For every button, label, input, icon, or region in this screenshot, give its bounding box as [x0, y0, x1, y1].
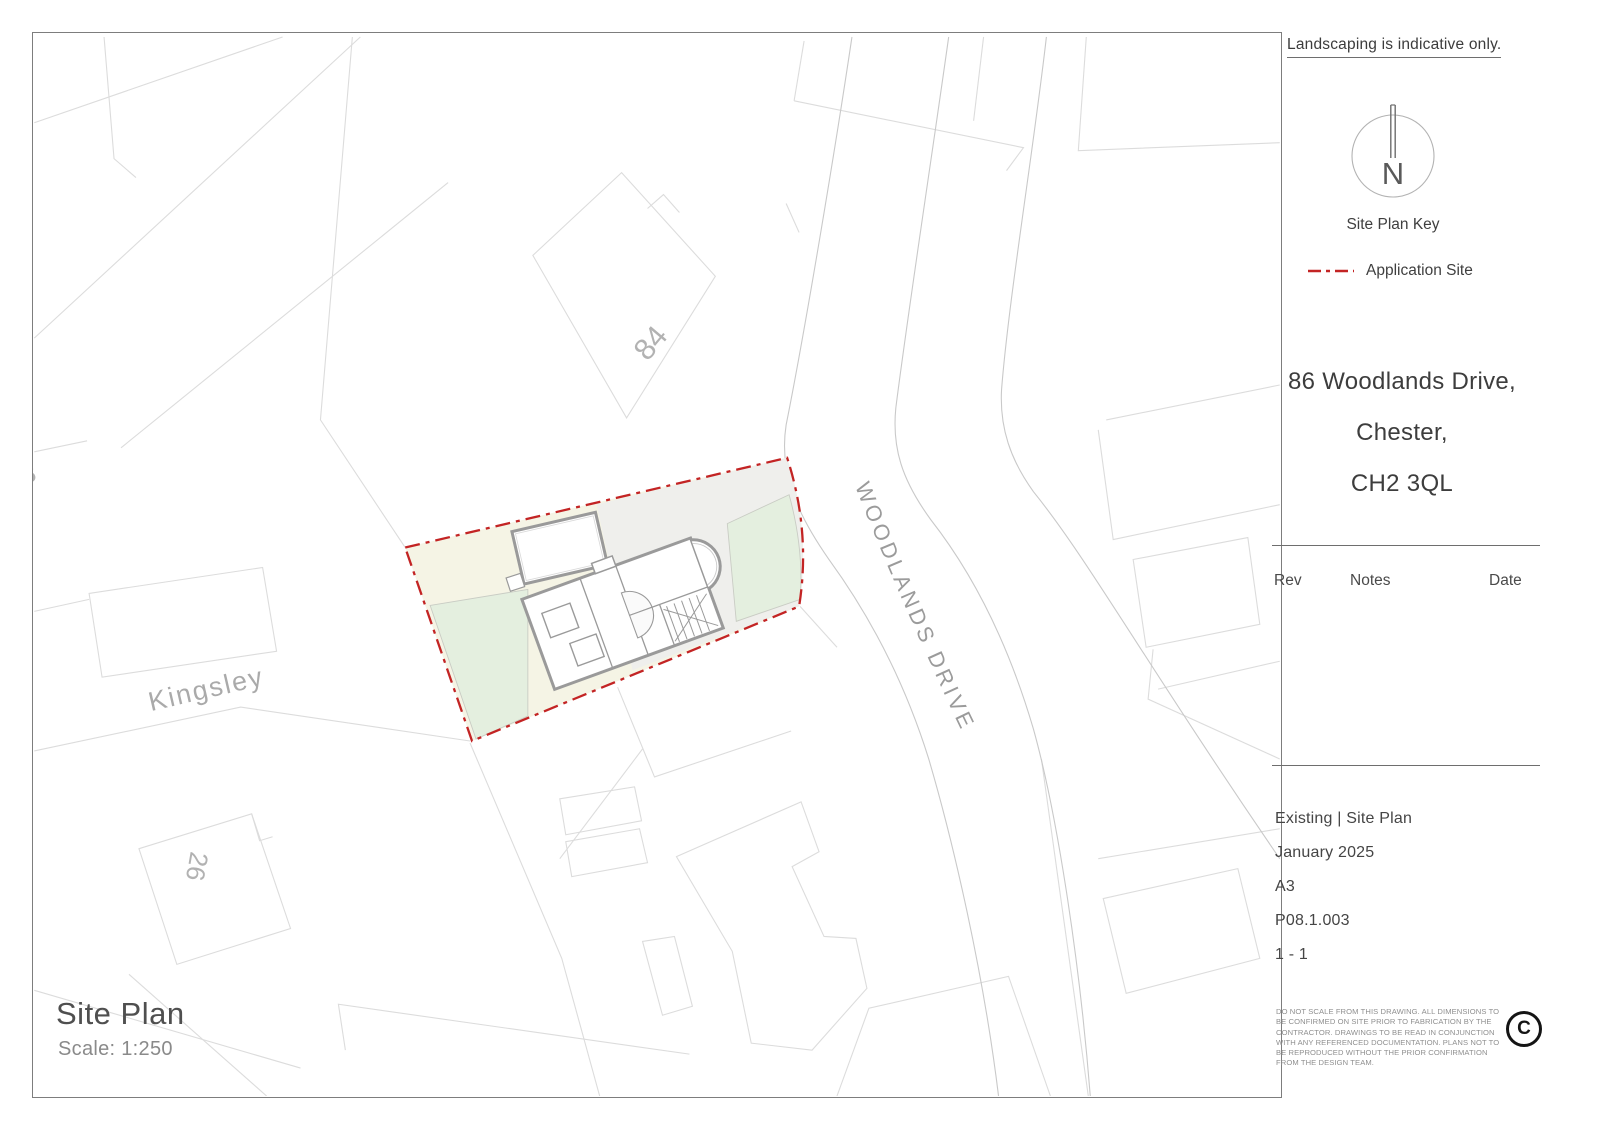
parcel-line — [121, 183, 448, 448]
neighbour-building — [676, 802, 866, 1050]
parcel-line — [794, 41, 804, 101]
notes-header: Notes — [1350, 572, 1391, 590]
parcel-line — [1098, 430, 1279, 540]
parcel-line — [837, 976, 1050, 1096]
drawing-info: Existing | Site Plan January 2025 A3 P08… — [1275, 810, 1412, 980]
road-label-woodlands-drive: WOODLANDS DRIVE — [850, 478, 980, 734]
application-site-dash-icon — [1308, 268, 1354, 274]
road-verge — [1001, 37, 1279, 859]
site-plan-sheet: 84 Kingsley 26 8 WOODLANDS DRIVE Site Pl… — [0, 0, 1600, 1131]
copyright-icon: C — [1506, 1011, 1542, 1047]
copyright-letter: C — [1517, 1018, 1531, 1040]
drawing-revision: 1 - 1 — [1275, 946, 1412, 964]
drawing-date: January 2025 — [1275, 844, 1412, 862]
neighbour-building-84 — [533, 173, 715, 418]
neighbour-building — [1103, 869, 1260, 994]
lawn-left — [430, 589, 528, 739]
neighbour-building — [89, 567, 276, 677]
drawing-number: P08.1.003 — [1275, 912, 1412, 930]
parcel-line — [104, 37, 136, 178]
address-line-1: 86 Woodlands Drive, — [1282, 368, 1522, 396]
parcel-line — [1158, 661, 1280, 689]
parcel-line — [1106, 385, 1280, 420]
disclaimer-text: DO NOT SCALE FROM THIS DRAWING. ALL DIME… — [1276, 1007, 1502, 1069]
drawing-title: Existing | Site Plan — [1275, 810, 1412, 828]
neighbour-building — [566, 829, 648, 877]
divider — [1272, 545, 1540, 546]
neighbour-building — [560, 787, 642, 835]
parcel-line — [252, 814, 273, 841]
parcel-line — [974, 37, 984, 121]
address-line-3: CH2 3QL — [1282, 470, 1522, 498]
paper-size: A3 — [1275, 878, 1412, 896]
legend-application-site: Application Site — [1308, 262, 1518, 280]
parcel-line — [648, 195, 680, 213]
parcel-line — [1041, 759, 1088, 1096]
divider — [1272, 765, 1540, 766]
parcel-line — [1098, 829, 1279, 859]
north-letter: N — [1382, 156, 1404, 191]
neighbour-building — [139, 814, 291, 965]
parcel-line — [34, 599, 89, 611]
drawing-frame: 84 Kingsley 26 8 WOODLANDS DRIVE — [32, 32, 1282, 1098]
parcel-line — [34, 37, 282, 123]
neighbour-building — [1133, 538, 1260, 648]
project-address: 86 Woodlands Drive, Chester, CH2 3QL — [1282, 368, 1522, 498]
parcel-line — [560, 749, 643, 859]
landscaping-note: Landscaping is indicative only. — [1287, 36, 1501, 58]
house-number-8: 8 — [33, 459, 39, 489]
house-number-26: 26 — [180, 850, 213, 883]
legend-label: Application Site — [1366, 262, 1473, 280]
road-woodlands-drive — [784, 37, 1279, 1096]
rev-header: Rev — [1274, 572, 1302, 590]
north-arrow: N — [1343, 100, 1443, 216]
parcel-line — [34, 441, 87, 452]
road-edge — [895, 37, 1090, 1096]
site-plan-key-title: Site Plan Key — [1300, 216, 1486, 234]
plan-caption-title: Site Plan — [56, 996, 185, 1032]
site-plan-drawing: 84 Kingsley 26 8 WOODLANDS DRIVE — [33, 33, 1280, 1096]
address-line-2: Chester, — [1282, 419, 1522, 447]
parcel-line — [794, 101, 1023, 171]
parcel-line — [320, 37, 405, 548]
date-header: Date — [1489, 572, 1522, 590]
road-label-text: WOODLANDS DRIVE — [850, 478, 980, 734]
parcel-line — [618, 687, 792, 777]
parcel-line — [800, 606, 837, 647]
parcel-line — [786, 204, 799, 233]
parcel-line — [1078, 37, 1279, 151]
parcel-line — [129, 974, 267, 1096]
parcel-line — [34, 707, 470, 751]
parcel-line — [338, 1004, 689, 1054]
plan-caption-scale: Scale: 1:250 — [58, 1038, 173, 1061]
neighbour-building — [643, 936, 693, 1015]
house-number-84: 84 — [628, 320, 675, 367]
